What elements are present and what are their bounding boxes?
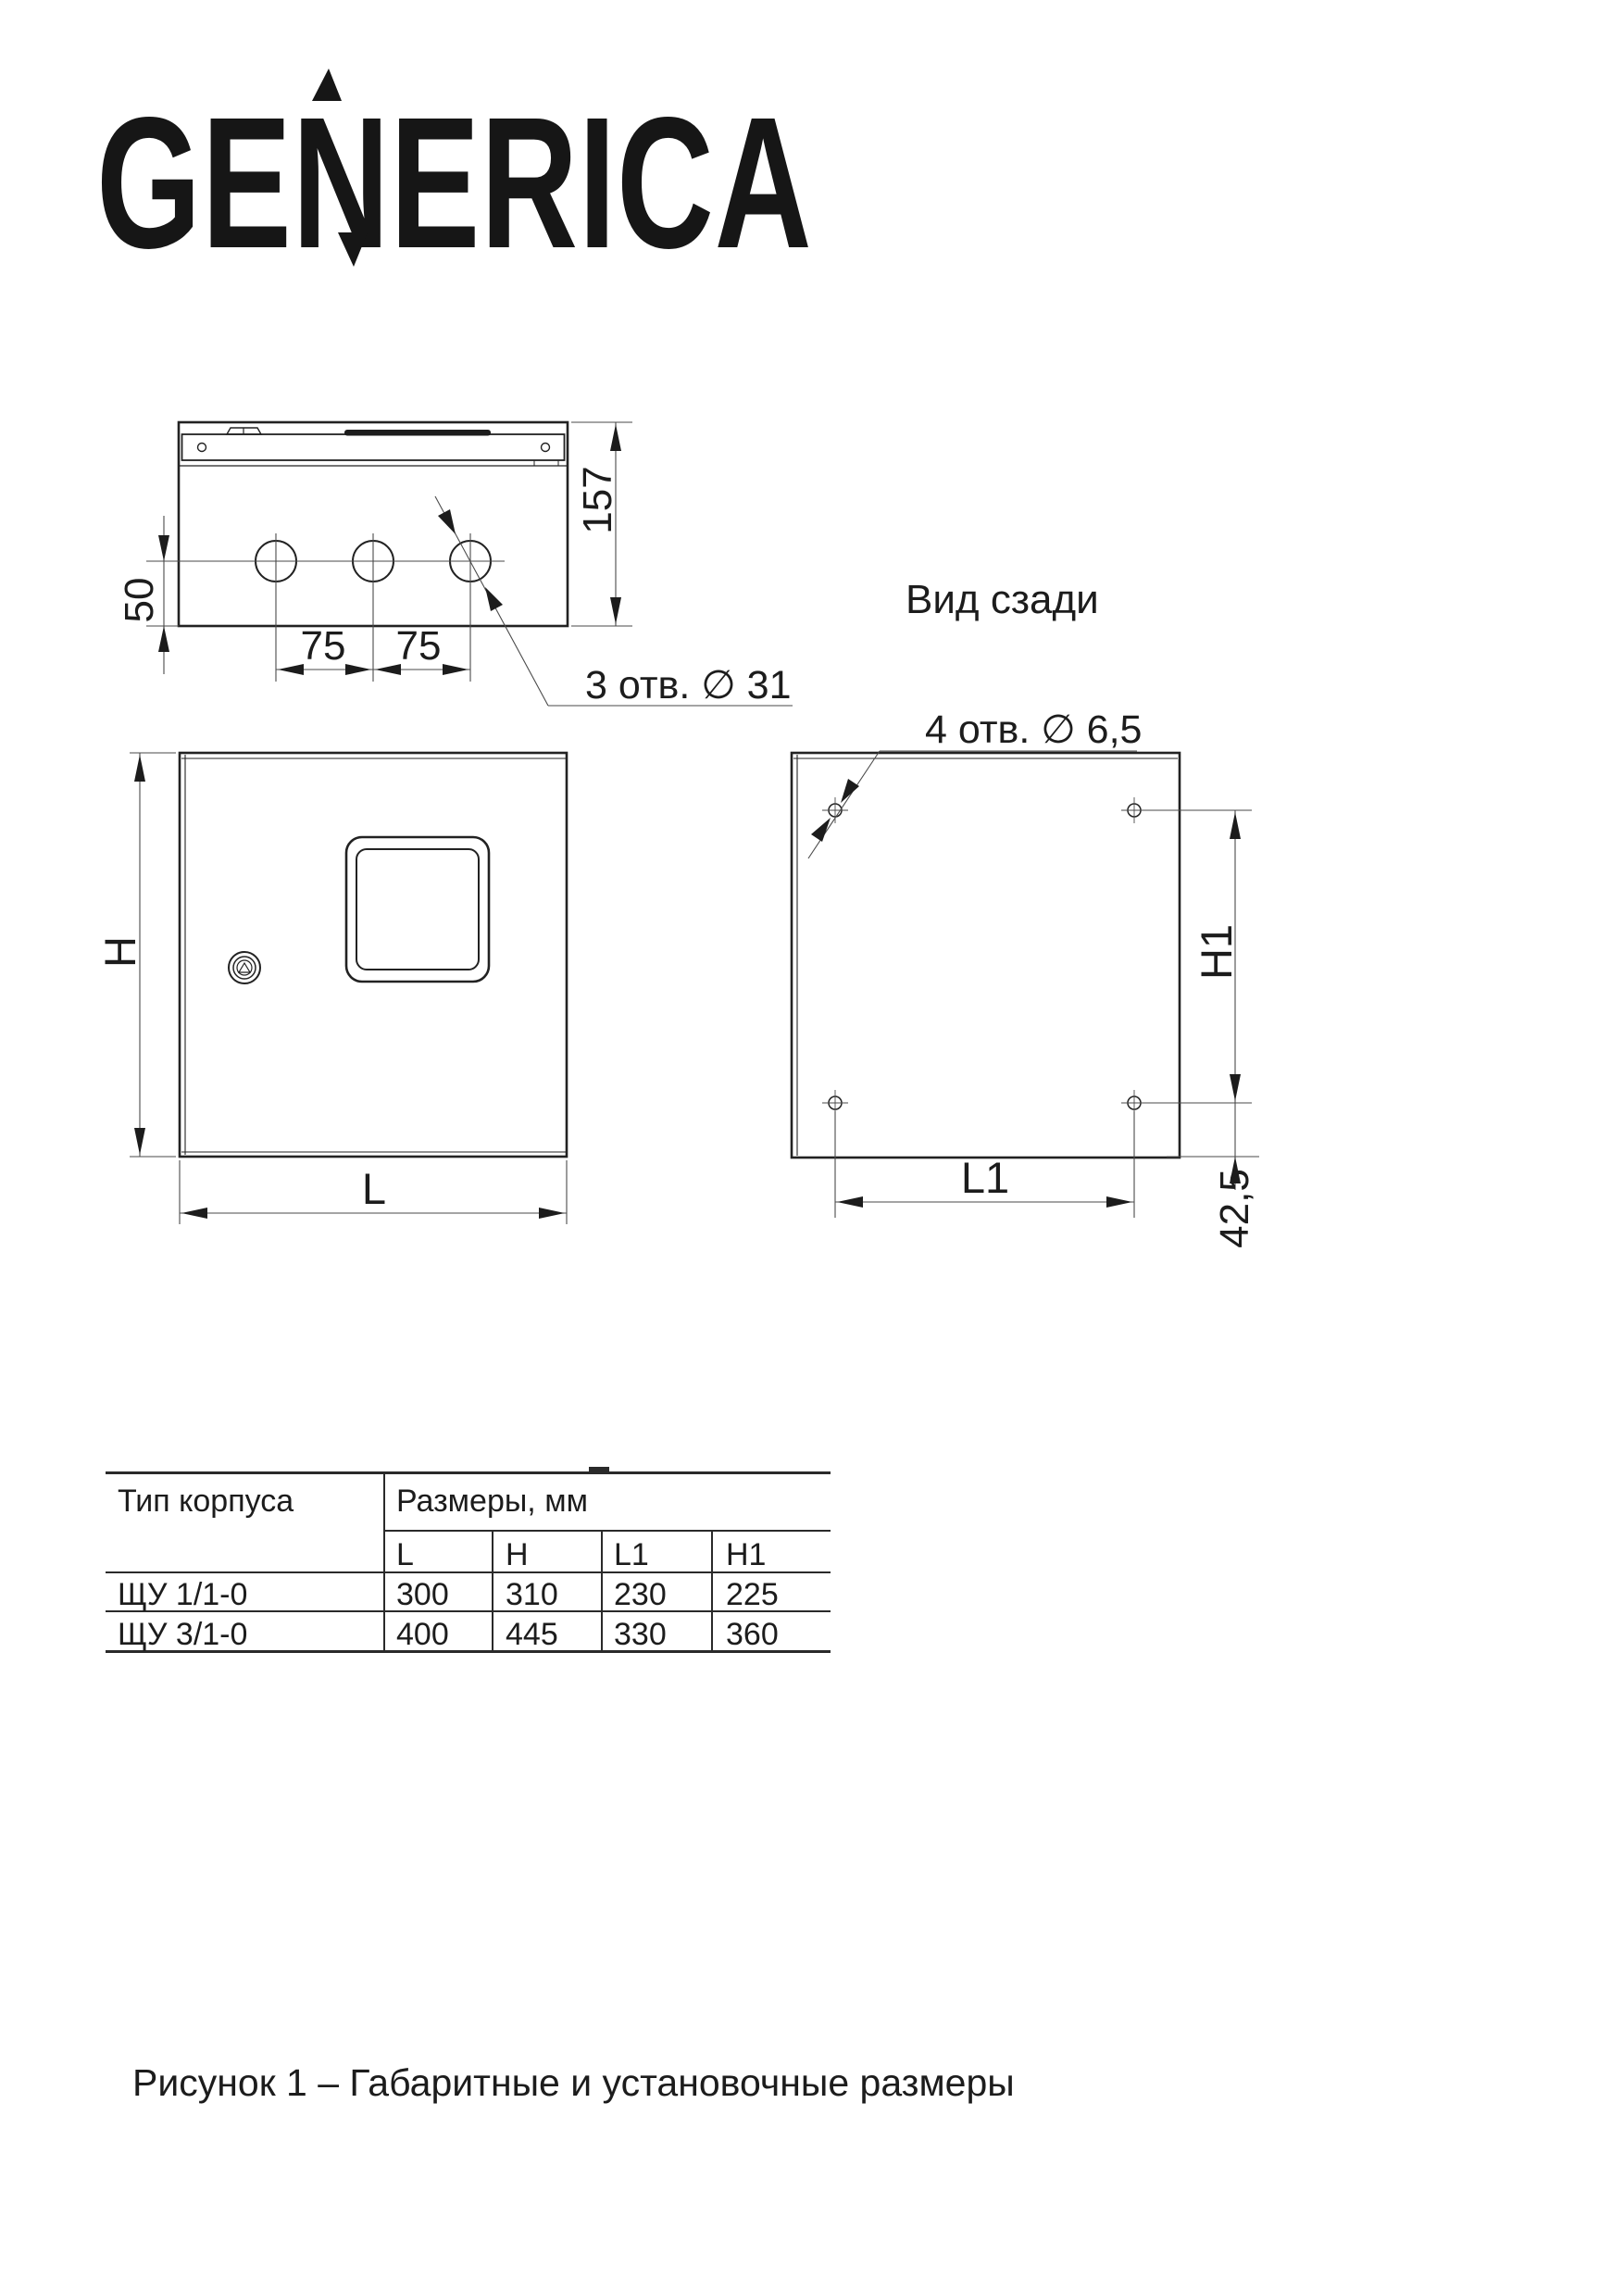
door-window-outer bbox=[346, 837, 489, 982]
dim-l: L bbox=[362, 1164, 386, 1213]
front-view-drawing: H L bbox=[95, 753, 567, 1224]
technical-drawing: 157 50 75 75 3 отв. ∅ 31 bbox=[0, 0, 1624, 2291]
holes-note-4x65: 4 отв. ∅ 6,5 bbox=[925, 707, 1142, 752]
top-view-drawing: 157 50 75 75 3 отв. ∅ 31 bbox=[117, 422, 793, 707]
dim-h1: H1 bbox=[1192, 924, 1241, 980]
door-handle-bar bbox=[344, 430, 491, 436]
dim-spacing-75a: 75 bbox=[301, 623, 346, 669]
dim-42-5: 42,5 bbox=[1212, 1169, 1257, 1248]
dim-spacing-75b: 75 bbox=[396, 623, 442, 669]
enclosure-front-outline bbox=[180, 753, 567, 1157]
logo-n-spike-bottom bbox=[338, 232, 368, 267]
rear-view-drawing: Вид сзади bbox=[792, 577, 1259, 1248]
logo-n-spike-top bbox=[312, 69, 342, 101]
dim-l1: L1 bbox=[961, 1153, 1009, 1202]
dim-offset-50: 50 bbox=[117, 578, 162, 623]
dim-depth-157: 157 bbox=[575, 466, 620, 533]
holes-note-3x31: 3 отв. ∅ 31 bbox=[585, 663, 792, 707]
rear-view-title: Вид сзади bbox=[906, 577, 1099, 622]
screw-hole bbox=[198, 444, 206, 452]
door-lock bbox=[229, 952, 260, 983]
datasheet-page: GENERICA Тип корпуса Размеры, мм L H L1 … bbox=[0, 0, 1624, 2291]
door-edge-strip bbox=[182, 434, 565, 460]
screw-hole bbox=[542, 444, 550, 452]
mounting-holes bbox=[829, 804, 1141, 1109]
door-window-inner bbox=[356, 849, 479, 970]
enclosure-rear-outline bbox=[792, 753, 1180, 1158]
dim-h: H bbox=[95, 936, 144, 968]
